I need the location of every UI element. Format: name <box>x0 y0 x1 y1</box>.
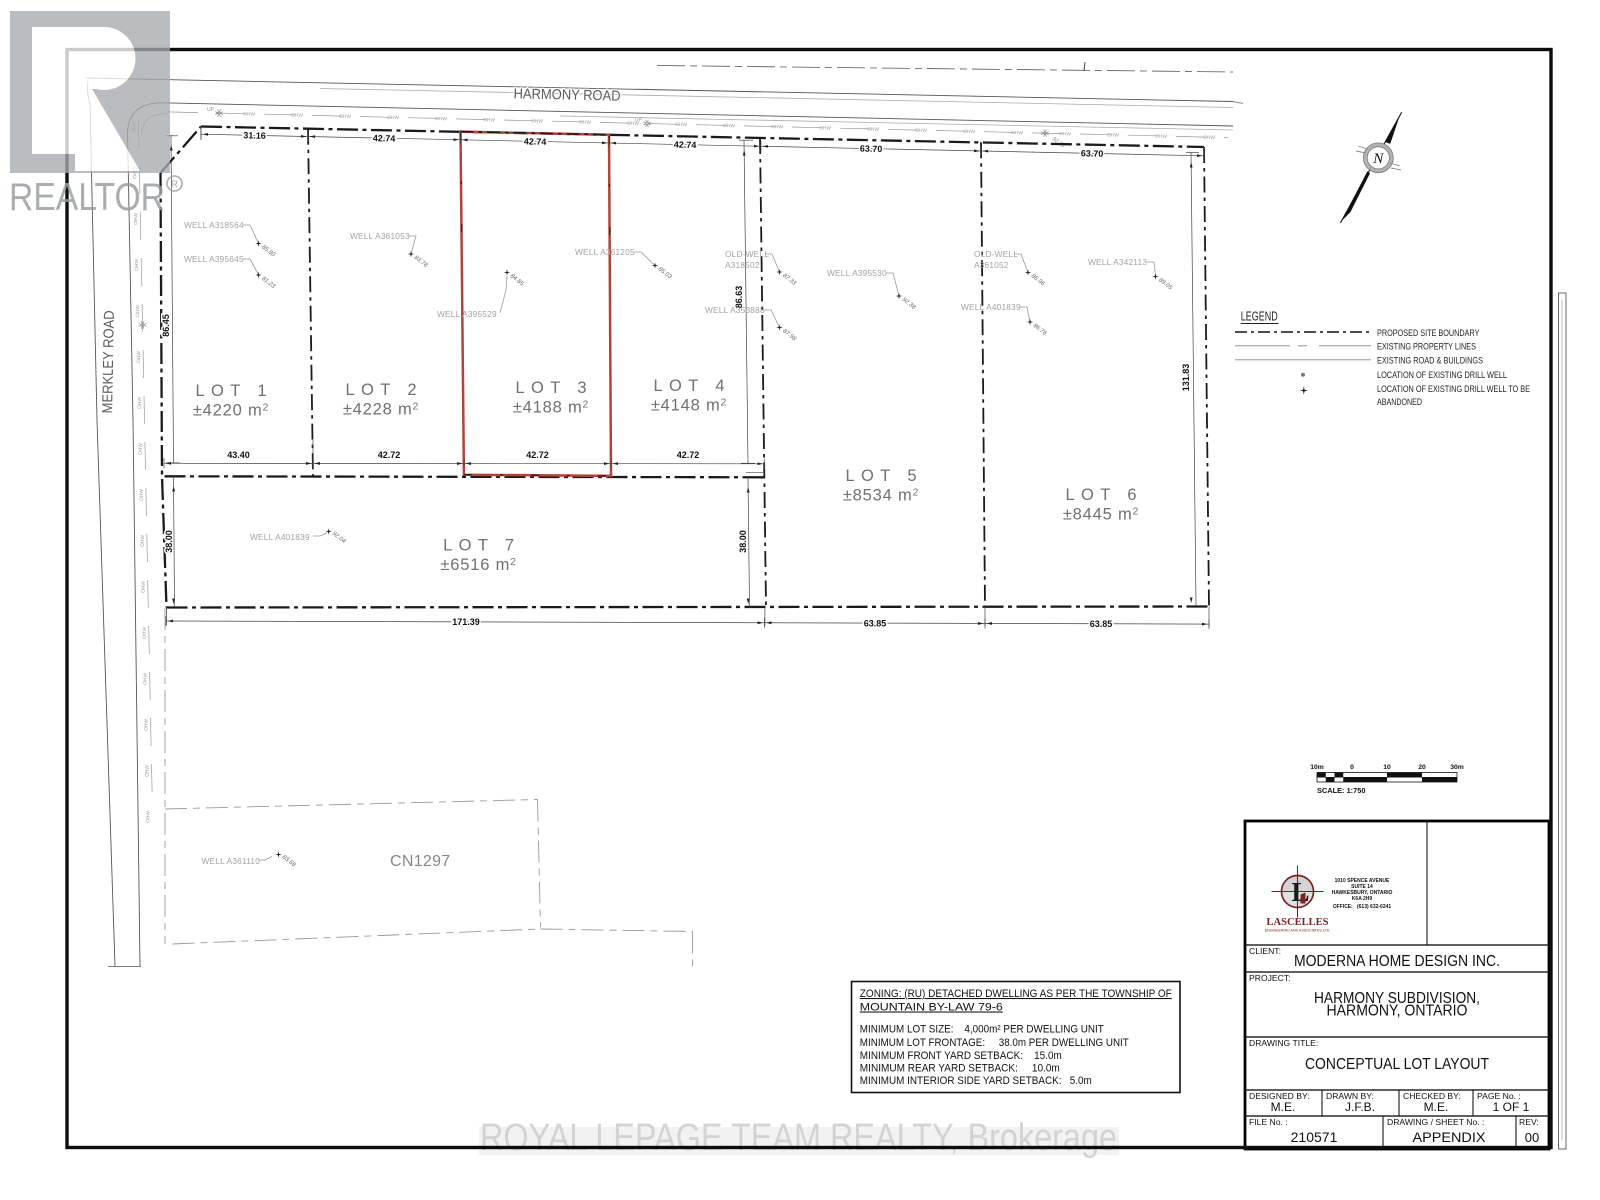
svg-text:30m: 30m <box>1450 764 1464 771</box>
svg-text:20: 20 <box>1418 764 1426 771</box>
svg-text:±4220 m2: ±4220 m2 <box>193 402 269 420</box>
svg-text:42.72: 42.72 <box>526 450 549 460</box>
svg-text:WELL A401839: WELL A401839 <box>961 302 1021 312</box>
svg-text:OHW: OHW <box>1107 132 1119 138</box>
svg-text:131.83: 131.83 <box>1181 364 1191 392</box>
svg-text:00: 00 <box>1525 1130 1539 1145</box>
svg-text:WELL A342113: WELL A342113 <box>1088 257 1147 267</box>
svg-text:R: R <box>171 180 178 191</box>
svg-text:1 OF 1: 1 OF 1 <box>1493 1100 1530 1114</box>
svg-text:WELL A361053: WELL A361053 <box>350 231 410 241</box>
svg-text:OHW: OHW <box>771 124 783 130</box>
svg-text:WELL A318564: WELL A318564 <box>184 220 244 230</box>
svg-text:OHW: OHW <box>675 122 687 128</box>
svg-text:OHW: OHW <box>387 115 399 121</box>
svg-text:DRAWING / SHEET No. :: DRAWING / SHEET No. : <box>1387 1117 1484 1127</box>
svg-text:OHW: OHW <box>140 535 146 547</box>
svg-text:OHW: OHW <box>1059 131 1071 137</box>
svg-text:OHW: OHW <box>963 129 975 135</box>
svg-text:42.72: 42.72 <box>677 450 700 460</box>
svg-text:CONCEPTUAL LOT LAYOUT: CONCEPTUAL LOT LAYOUT <box>1305 1056 1489 1073</box>
svg-text:38.00: 38.00 <box>738 530 748 553</box>
svg-text:MINIMUM FRONT YARD SETBACK:: MINIMUM FRONT YARD SETBACK: 15.0m <box>860 1050 1062 1062</box>
svg-text:10: 10 <box>1383 764 1391 771</box>
svg-text:WELL A401839: WELL A401839 <box>250 532 310 542</box>
svg-text:ENGINEERING AND ASSOCIATES LTD: ENGINEERING AND ASSOCIATES LTD. <box>1265 929 1331 933</box>
svg-text:SCALE: 1:750: SCALE: 1:750 <box>1317 786 1365 795</box>
svg-text:OHW: OHW <box>291 113 303 119</box>
svg-text:LOCATION OF EXISTING DRILL WEL: LOCATION OF EXISTING DRILL WELL <box>1377 370 1507 380</box>
svg-text:LOCATION OF EXISTING DRILL WEL: LOCATION OF EXISTING DRILL WELL TO BE <box>1377 384 1530 394</box>
svg-text:REALTOR: REALTOR <box>9 176 165 219</box>
svg-text:63.70: 63.70 <box>1081 148 1104 158</box>
svg-text:43.40: 43.40 <box>227 450 250 460</box>
svg-text:OLD-WELL: OLD-WELL <box>974 249 1018 259</box>
svg-text:63.85: 63.85 <box>864 618 887 628</box>
svg-text:A318502: A318502 <box>725 260 760 270</box>
svg-text:WELL A361205: WELL A361205 <box>575 247 635 257</box>
svg-text:±8445 m2: ±8445 m2 <box>1063 506 1139 524</box>
svg-text:EXISTING PROPERTY LINES: EXISTING PROPERTY LINES <box>1377 342 1476 352</box>
svg-text:210571: 210571 <box>1291 1129 1338 1145</box>
svg-text:10m: 10m <box>1310 764 1324 771</box>
svg-text:MINIMUM REAR YARD SETBACK:: MINIMUM REAR YARD SETBACK: 10.0m <box>860 1063 1060 1075</box>
svg-text:63.85: 63.85 <box>1090 619 1113 629</box>
svg-text:UP: UP <box>207 107 215 113</box>
svg-text:OHW: OHW <box>141 581 147 593</box>
svg-text:APPENDIX: APPENDIX <box>1413 1129 1487 1145</box>
svg-text:OHW: OHW <box>142 627 148 639</box>
svg-text:WELL A395530: WELL A395530 <box>827 268 887 278</box>
svg-text:M.E.: M.E. <box>1424 1100 1449 1114</box>
svg-text:OHW: OHW <box>915 128 927 134</box>
svg-text:ROYAL LEPAGE TEAM REALTY, Brok: ROYAL LEPAGE TEAM REALTY, Brokerage <box>480 1117 1117 1159</box>
svg-text:CLIENT:: CLIENT: <box>1249 946 1281 956</box>
svg-text:LASCELLES: LASCELLES <box>1267 917 1329 928</box>
svg-text:OHW: OHW <box>579 120 591 126</box>
svg-text:MOUNTAIN BY-LAW 79-6: MOUNTAIN BY-LAW 79-6 <box>860 1002 1003 1014</box>
svg-text:86.45: 86.45 <box>161 314 171 337</box>
svg-text:OHW: OHW <box>145 811 151 823</box>
svg-text:OHW: OHW <box>531 118 543 124</box>
svg-text:WELL A353888: WELL A353888 <box>705 305 765 315</box>
svg-text:CN1297: CN1297 <box>390 853 451 870</box>
svg-text:31.16: 31.16 <box>243 130 266 140</box>
svg-text:PROPOSED SITE BOUNDARY: PROPOSED SITE BOUNDARY <box>1377 328 1480 338</box>
svg-text:LEGEND: LEGEND <box>1241 309 1278 324</box>
svg-text:±4228 m2: ±4228 m2 <box>343 401 419 419</box>
svg-text:OHW: OHW <box>243 111 255 117</box>
svg-text:0: 0 <box>1350 764 1354 771</box>
svg-text:42.72: 42.72 <box>378 450 401 460</box>
svg-text:OHW: OHW <box>135 305 141 317</box>
svg-text:OHW: OHW <box>134 259 140 271</box>
svg-text:OHW: OHW <box>144 765 150 777</box>
svg-text:OHW: OHW <box>142 673 148 685</box>
svg-text:63.70: 63.70 <box>860 144 883 154</box>
svg-text:WELL A395529: WELL A395529 <box>437 309 497 319</box>
svg-text:MERKLEY ROAD: MERKLEY ROAD <box>100 310 118 413</box>
svg-text:38.00: 38.00 <box>164 530 174 553</box>
svg-text:DRAWING TITLE:: DRAWING TITLE: <box>1249 1038 1318 1048</box>
svg-text:M.E.: M.E. <box>1271 1100 1296 1114</box>
svg-text:MODERNA HOME DESIGN INC.: MODERNA HOME DESIGN INC. <box>1294 953 1500 970</box>
svg-text:PROJECT:: PROJECT: <box>1249 973 1291 983</box>
svg-text:±4188 m2: ±4188 m2 <box>513 399 589 417</box>
svg-text:OFFICE: (613) 632-0241: OFFICE: (613) 632-0241 <box>1333 904 1392 910</box>
svg-text:WELL A395645: WELL A395645 <box>184 254 244 264</box>
svg-text:±6516 m2: ±6516 m2 <box>440 556 516 574</box>
svg-text:MINIMUM INTERIOR SIDE YARD SET: MINIMUM INTERIOR SIDE YARD SETBACK: 5.0m <box>860 1075 1092 1087</box>
svg-text:A361052: A361052 <box>974 260 1009 270</box>
svg-text:OHW: OHW <box>819 125 831 131</box>
svg-text:42.74: 42.74 <box>373 133 396 143</box>
svg-text:OHW: OHW <box>143 719 149 731</box>
svg-text:HARMONY, ONTARIO: HARMONY, ONTARIO <box>1327 1003 1468 1020</box>
svg-text:K6A 2H9: K6A 2H9 <box>1352 896 1373 902</box>
svg-text:REV:: REV: <box>1519 1117 1539 1127</box>
svg-text:42.74: 42.74 <box>674 140 697 150</box>
svg-text:OHW: OHW <box>137 397 143 409</box>
svg-text:OHW: OHW <box>136 351 142 363</box>
svg-text:ABANDONED: ABANDONED <box>1377 397 1422 407</box>
svg-text:42.74: 42.74 <box>524 136 547 146</box>
svg-text:OHW: OHW <box>339 114 351 120</box>
svg-text:OHW: OHW <box>1155 134 1167 140</box>
svg-text:HARMONY ROAD: HARMONY ROAD <box>513 86 620 104</box>
svg-text:OHW: OHW <box>138 443 144 455</box>
svg-text:OLD-WELL: OLD-WELL <box>725 249 769 259</box>
svg-text:EXISTING ROAD & BUILDINGS: EXISTING ROAD & BUILDINGS <box>1377 355 1483 365</box>
svg-text:MINIMUM LOT SIZE: 4,000m² P: MINIMUM LOT SIZE: 4,000m² PER DWELLING U… <box>860 1024 1104 1036</box>
svg-text:J.F.B.: J.F.B. <box>1345 1100 1375 1114</box>
svg-text:OHW: OHW <box>723 123 735 129</box>
svg-text:WELL A361110: WELL A361110 <box>202 856 261 866</box>
svg-text:OHW: OHW <box>1011 130 1023 136</box>
svg-text:171.39: 171.39 <box>452 617 480 627</box>
svg-text:OHW: OHW <box>867 127 879 133</box>
svg-text:ZONING: (RU) DETACHED DWELLING: ZONING: (RU) DETACHED DWELLING AS PER TH… <box>860 988 1172 1000</box>
svg-text:N: N <box>1372 151 1384 167</box>
svg-text:±8534 m2: ±8534 m2 <box>843 487 919 505</box>
svg-text:UP: UP <box>635 117 643 123</box>
svg-text:OHW: OHW <box>435 116 447 122</box>
svg-text:OHW: OHW <box>139 489 145 501</box>
svg-text:OHW: OHW <box>1203 135 1215 141</box>
svg-text:FILE No. :: FILE No. : <box>1249 1117 1288 1127</box>
svg-text:MINIMUM LOT FRONTAGE: 38.0: MINIMUM LOT FRONTAGE: 38.0m PER DWELLING… <box>860 1037 1129 1049</box>
svg-text:OHW: OHW <box>483 117 495 123</box>
svg-text:±4148 m2: ±4148 m2 <box>651 397 727 415</box>
